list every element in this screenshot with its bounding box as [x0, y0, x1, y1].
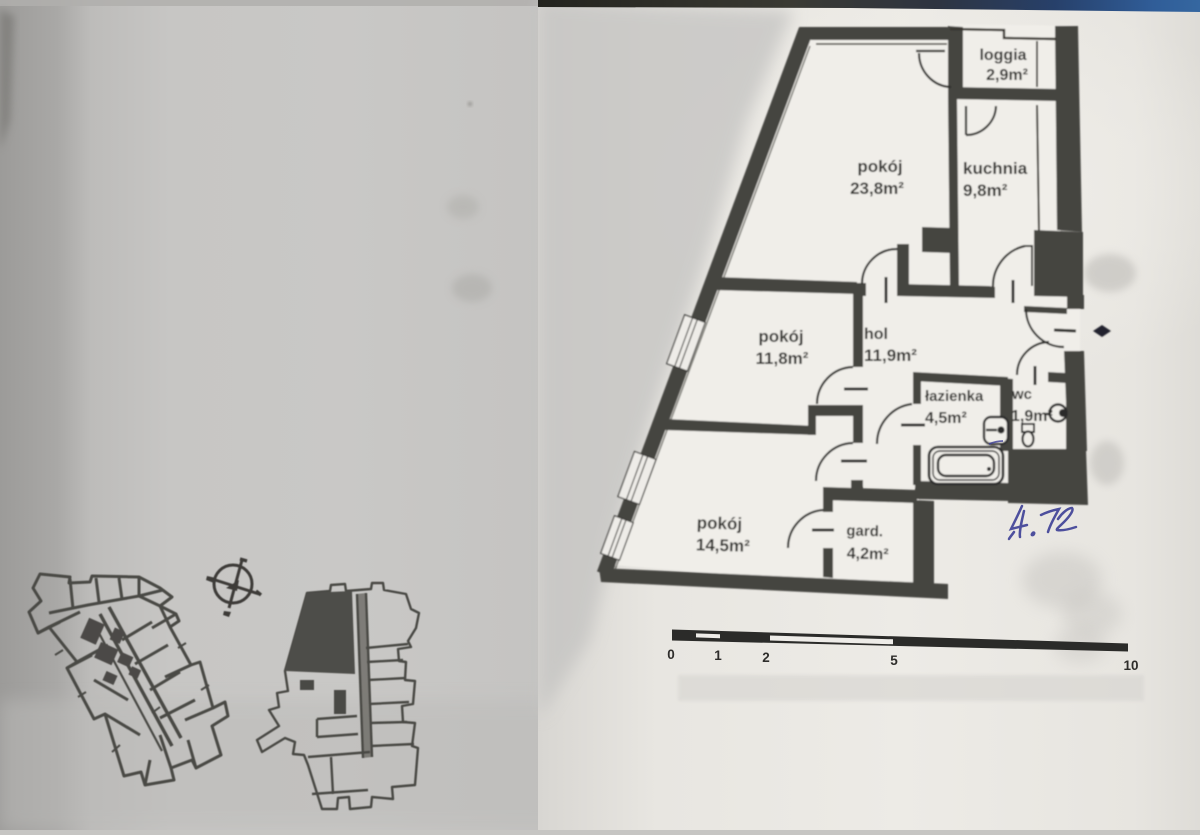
svg-text:2: 2 [762, 650, 770, 665]
svg-text:1: 1 [714, 648, 722, 663]
svg-text:9,8m²: 9,8m² [963, 181, 1008, 200]
svg-text:1,9m²: 1,9m² [1011, 408, 1053, 425]
svg-text:11,9m²: 11,9m² [864, 346, 917, 365]
svg-text:wc: wc [1011, 386, 1032, 403]
svg-text:23,8m²: 23,8m² [850, 179, 904, 198]
svg-text:0: 0 [667, 647, 675, 662]
svg-text:hol: hol [864, 326, 888, 343]
svg-text:14,5m²: 14,5m² [696, 535, 751, 555]
svg-text:10: 10 [1123, 658, 1138, 673]
svg-text:łazienka: łazienka [925, 388, 984, 405]
svg-text:pokój: pokój [697, 513, 743, 533]
svg-text:4,2m²: 4,2m² [847, 545, 889, 563]
svg-text:2,9m²: 2,9m² [986, 67, 1028, 84]
svg-text:kuchnia: kuchnia [963, 159, 1028, 178]
svg-text:5: 5 [890, 653, 898, 668]
svg-text:11,8m²: 11,8m² [756, 349, 809, 368]
svg-text:pokój: pokój [857, 157, 902, 176]
svg-text:4,5m²: 4,5m² [925, 410, 967, 427]
svg-text:gard.: gard. [846, 522, 883, 540]
svg-text:pokój: pokój [758, 327, 803, 346]
svg-text:loggia: loggia [979, 47, 1026, 64]
